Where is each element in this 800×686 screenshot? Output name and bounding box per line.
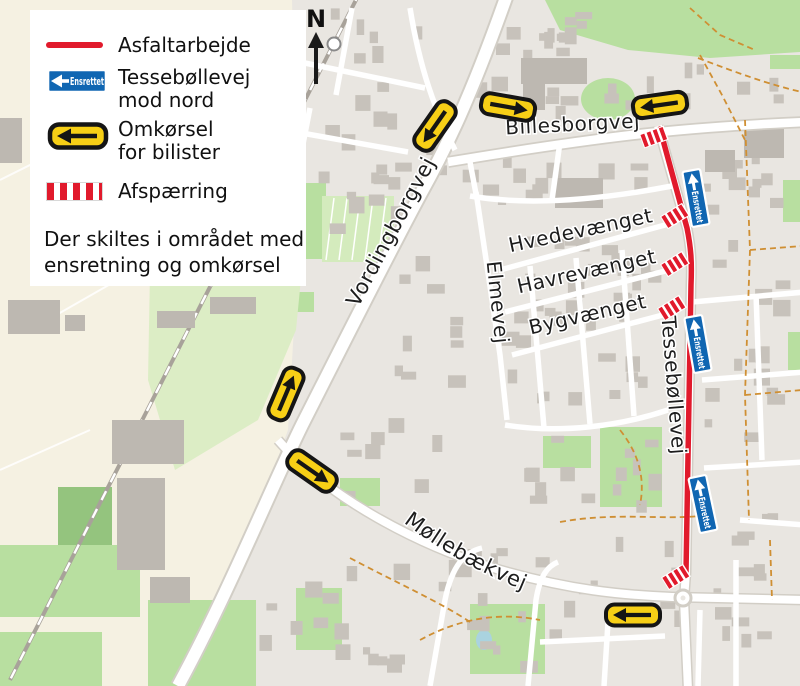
building <box>608 84 617 94</box>
building <box>369 195 385 206</box>
oneway-sign-icon: Ensrettet <box>46 68 108 94</box>
building <box>770 198 784 208</box>
building <box>347 192 356 200</box>
building <box>314 618 329 629</box>
legend-note-line2: ensretning og omkørsel <box>44 252 304 278</box>
building <box>774 94 784 103</box>
building <box>649 474 662 491</box>
building <box>705 388 719 402</box>
building <box>513 169 526 183</box>
roadwork-line-swatch <box>46 42 103 48</box>
building <box>371 432 385 445</box>
building <box>665 541 674 557</box>
building <box>370 32 378 43</box>
building <box>401 372 416 380</box>
building <box>354 53 366 63</box>
building <box>757 631 772 639</box>
building <box>575 12 592 19</box>
building <box>335 623 349 639</box>
building <box>451 340 464 347</box>
building <box>336 644 351 660</box>
building <box>450 317 463 325</box>
building <box>729 177 746 190</box>
building <box>604 94 619 104</box>
building <box>427 284 445 294</box>
building <box>707 205 719 215</box>
building <box>734 359 742 371</box>
detour-arrow-marker <box>606 605 660 626</box>
building <box>547 88 559 97</box>
building <box>556 48 570 57</box>
building <box>559 32 570 42</box>
building <box>492 77 509 92</box>
legend-note-line1: Der skiltes i området med <box>44 226 304 252</box>
building <box>638 377 648 388</box>
building <box>776 280 791 289</box>
building <box>496 548 507 556</box>
building <box>705 419 713 427</box>
building <box>266 603 277 610</box>
legend-label-omkoersel-line1: Omkørsel <box>118 118 220 141</box>
building <box>631 164 649 171</box>
building <box>374 112 388 127</box>
closure-stripes-swatch <box>46 182 103 201</box>
building <box>448 375 466 388</box>
building <box>599 163 615 179</box>
building <box>582 494 596 504</box>
building <box>564 601 575 618</box>
roundabout <box>675 590 691 606</box>
building <box>450 326 462 338</box>
building <box>713 260 727 268</box>
building <box>530 496 547 504</box>
building <box>598 353 616 361</box>
detour-arrow-icon <box>46 120 110 152</box>
building <box>388 177 400 190</box>
building <box>544 32 553 49</box>
building <box>399 275 410 284</box>
building <box>260 635 272 651</box>
building <box>609 390 620 399</box>
building <box>377 656 388 665</box>
building <box>496 43 510 55</box>
legend-note: Der skiltes i området med ensretning og … <box>44 226 304 278</box>
building <box>560 467 575 481</box>
building <box>363 647 370 654</box>
building <box>355 95 370 111</box>
building <box>647 76 654 93</box>
building <box>749 187 760 198</box>
building <box>394 564 411 580</box>
building <box>377 82 389 92</box>
building <box>565 17 577 25</box>
building <box>305 582 322 598</box>
building <box>728 240 738 252</box>
legend-label-omkoersel-line2: for bilister <box>118 141 220 164</box>
building <box>347 450 362 457</box>
building <box>330 223 346 234</box>
building <box>568 392 582 405</box>
legend-label-ensrettet-line2: mod nord <box>118 89 250 112</box>
building <box>432 435 442 452</box>
building <box>546 96 559 104</box>
building <box>754 564 765 577</box>
legend-label-afspaerring: Afspærring <box>118 180 228 203</box>
building <box>616 468 627 482</box>
building <box>526 468 540 482</box>
building <box>371 173 379 184</box>
building <box>372 46 383 63</box>
building <box>319 172 330 184</box>
building <box>365 444 380 459</box>
building <box>483 185 499 196</box>
building <box>535 482 546 497</box>
legend-label-ensrettet-line1: Tessebøllevej <box>118 66 250 89</box>
building <box>685 63 693 79</box>
building <box>561 96 579 105</box>
building <box>347 566 358 581</box>
building <box>551 436 564 443</box>
building <box>636 500 647 513</box>
building <box>516 335 531 348</box>
building <box>715 607 732 620</box>
building <box>403 336 412 352</box>
building <box>737 82 750 95</box>
building <box>291 621 303 635</box>
building <box>387 113 397 129</box>
building <box>416 256 431 271</box>
building <box>395 366 403 377</box>
legend-label-asfaltarbejde: Asfaltarbejde <box>118 34 251 57</box>
building <box>532 184 542 195</box>
building <box>752 179 761 188</box>
building <box>738 567 756 576</box>
building <box>577 21 587 29</box>
building <box>478 593 488 606</box>
building <box>323 593 339 604</box>
building <box>613 484 622 495</box>
building <box>389 418 405 433</box>
building <box>722 626 730 641</box>
legend-oneway-sign-text: Ensrettet <box>70 75 104 88</box>
building <box>773 300 790 317</box>
building <box>507 27 521 40</box>
building <box>741 634 751 648</box>
legend-panel: Asfaltarbejde Ensrettet Tessebøllevej mo… <box>30 10 306 286</box>
building <box>415 479 429 493</box>
building <box>357 19 365 35</box>
building <box>761 173 773 185</box>
building <box>550 629 563 639</box>
building <box>616 537 624 552</box>
building <box>493 646 500 655</box>
building <box>508 370 518 384</box>
building <box>340 433 354 441</box>
building <box>645 440 658 448</box>
building <box>697 64 704 74</box>
building <box>390 655 405 665</box>
building <box>732 536 749 546</box>
